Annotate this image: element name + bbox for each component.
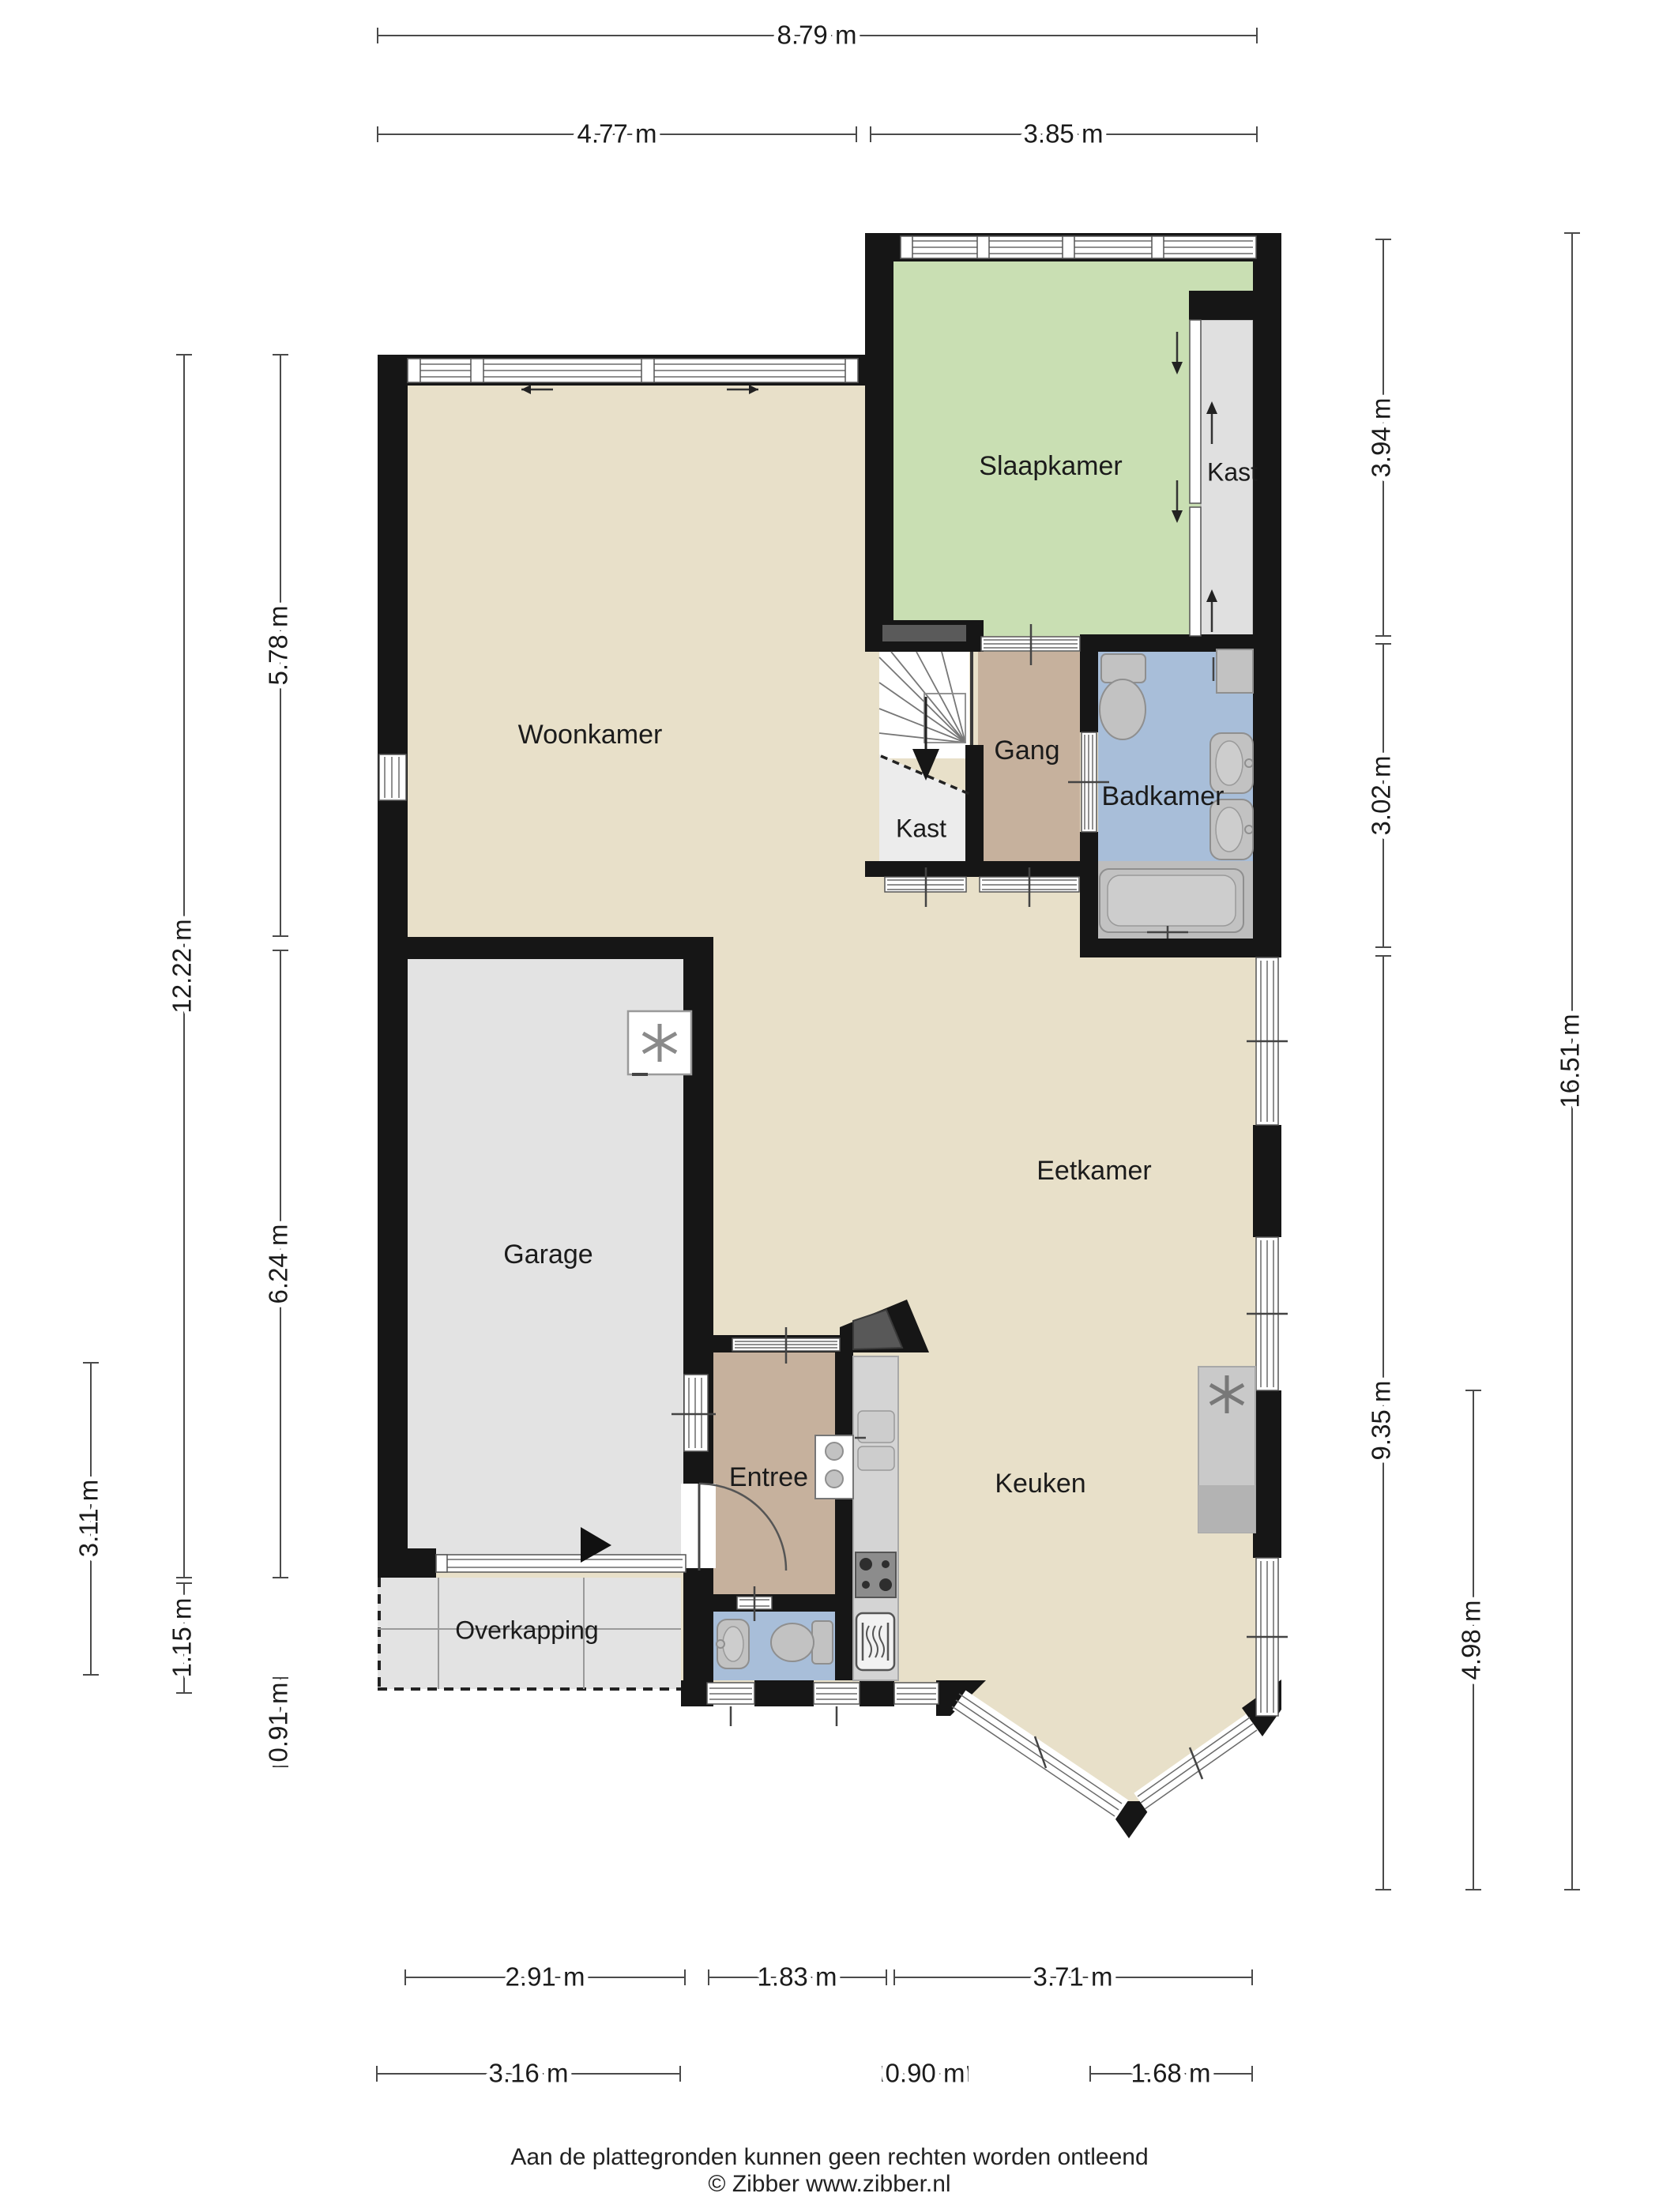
footer-disclaimer: Aan de plattegronden kunnen geen rechten… <box>510 2144 1148 2170</box>
label-slaapkamer: Slaapkamer <box>979 451 1122 481</box>
dim-left-mid-lower: 1.15 m <box>167 1583 197 1693</box>
dim-top-total: 8.79 m <box>378 21 1257 50</box>
dim-bottom1-right: 3.71 m <box>894 1962 1252 1992</box>
svg-text:4.98 m: 4.98 m <box>1457 1601 1486 1680</box>
label-kast-stairs: Kast <box>896 814 946 842</box>
svg-text:3.85 m: 3.85 m <box>1024 119 1104 149</box>
floor-plan-svg: Woonkamer Slaapkamer Kast Gang Kast Badk… <box>0 0 1659 2212</box>
svg-text:5.78 m: 5.78 m <box>264 606 293 686</box>
label-gang: Gang <box>994 735 1059 766</box>
shower-tray <box>1217 649 1253 693</box>
footer: Aan de plattegronden kunnen geen rechten… <box>510 2144 1148 2197</box>
svg-text:16.51 m: 16.51 m <box>1556 1014 1585 1108</box>
stove-icon <box>856 1552 896 1597</box>
dim-bottom2-right: 1.68 m <box>1090 2059 1252 2088</box>
west-wall-window <box>379 754 406 800</box>
heater-icon-garage <box>628 1011 691 1074</box>
svg-text:1.68 m: 1.68 m <box>1131 2059 1211 2088</box>
dim-right-outer: 16.51 m <box>1556 233 1585 1890</box>
svg-text:0.90 m: 0.90 m <box>886 2059 965 2088</box>
svg-text:2.91 m: 2.91 m <box>506 1962 585 1992</box>
slaapkamer-window <box>901 236 1256 258</box>
svg-text:8.79 m: 8.79 m <box>777 21 857 50</box>
svg-text:1.15 m: 1.15 m <box>167 1598 197 1678</box>
kitchen-counter-west <box>853 1356 898 1680</box>
south-windows <box>707 1683 939 1726</box>
bathtub-icon <box>1100 869 1243 939</box>
dim-right-inner-top: 3.94 m <box>1367 239 1396 636</box>
label-badkamer: Badkamer <box>1102 781 1224 811</box>
dim-left-inner-top: 5.78 m <box>264 355 293 936</box>
dim-left-mid-total: 12.22 m <box>167 355 197 1578</box>
svg-text:6.24 m: 6.24 m <box>264 1224 293 1304</box>
label-kast-bedroom: Kast <box>1207 457 1258 486</box>
dim-bottom2-left: 3.16 m <box>377 2059 680 2088</box>
toilet-icon-badkamer <box>1100 654 1145 739</box>
label-entree: Entree <box>729 1462 808 1492</box>
meter-niche <box>815 1435 853 1499</box>
kitchen-counter-east <box>1198 1367 1255 1533</box>
svg-text:3.94 m: 3.94 m <box>1367 398 1396 478</box>
dim-right-inner-mid: 3.02 m <box>1367 644 1396 947</box>
dim-left-inner-lowest: 0.91 m <box>264 1678 293 1766</box>
floors <box>378 261 1256 1816</box>
label-woonkamer: Woonkamer <box>518 720 663 750</box>
svg-text:4.77 m: 4.77 m <box>577 119 657 149</box>
dim-top-left: 4.77 m <box>378 119 856 149</box>
svg-text:1.83 m: 1.83 m <box>758 1962 837 1992</box>
svg-text:3.02 m: 3.02 m <box>1367 756 1396 836</box>
dim-left-outer: 3.11 m <box>74 1363 103 1675</box>
svg-text:3.71 m: 3.71 m <box>1033 1962 1113 1992</box>
svg-text:0.91 m: 0.91 m <box>264 1683 293 1762</box>
garage-door <box>436 1555 686 1572</box>
dim-bottom2-mid: 0.90 m <box>882 2059 968 2088</box>
svg-text:9.35 m: 9.35 m <box>1367 1381 1396 1461</box>
label-eetkamer: Eetkamer <box>1036 1156 1152 1186</box>
dim-right-mid: 4.98 m <box>1457 1390 1486 1890</box>
dim-bottom1-mid: 1.83 m <box>709 1962 886 1992</box>
footer-credit: © Zibber www.zibber.nl <box>708 2171 950 2197</box>
dim-left-inner-bottom: 6.24 m <box>264 950 293 1578</box>
svg-text:12.22 m: 12.22 m <box>167 919 197 1013</box>
dim-bottom1-left: 2.91 m <box>405 1962 685 1992</box>
svg-text:3.11 m: 3.11 m <box>74 1480 103 1557</box>
oven-icon <box>856 1613 894 1670</box>
dim-top-right: 3.85 m <box>871 119 1257 149</box>
svg-text:3.16 m: 3.16 m <box>489 2059 569 2088</box>
floor-plan-page: Woonkamer Slaapkamer Kast Gang Kast Badk… <box>0 0 1659 2212</box>
dim-right-inner-bottom: 9.35 m <box>1367 956 1396 1890</box>
label-keuken: Keuken <box>995 1469 1085 1499</box>
sink-icon-toiletroom <box>717 1619 749 1668</box>
label-garage: Garage <box>503 1240 592 1270</box>
toilet-icon-toiletroom <box>771 1621 833 1664</box>
label-overkapping: Overkapping <box>455 1616 598 1644</box>
